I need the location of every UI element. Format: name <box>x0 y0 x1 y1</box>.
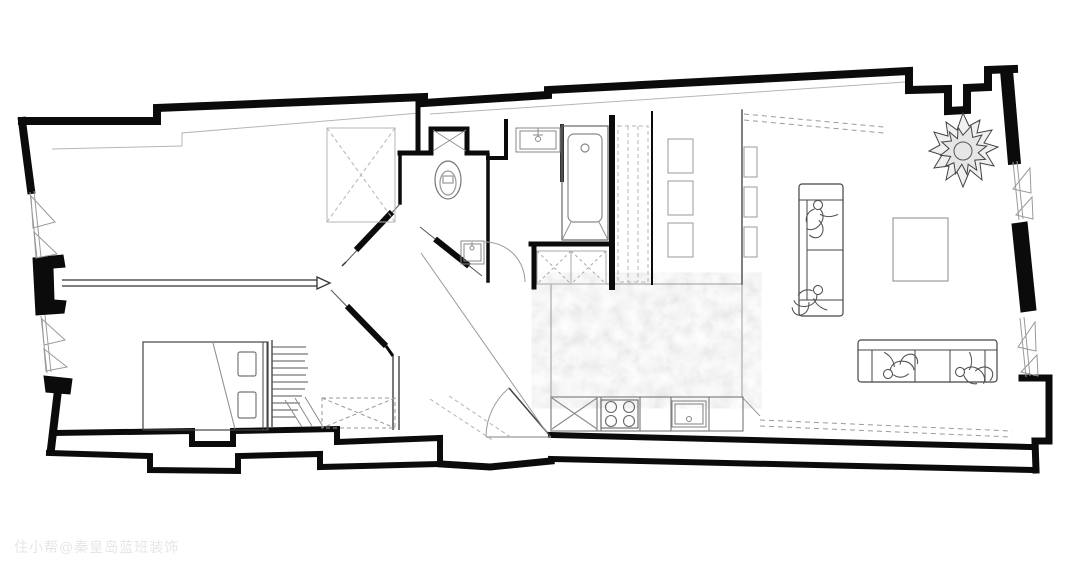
floor-plan-canvas: 住小帮@秦皇岛蓝班装饰 <box>0 0 1080 572</box>
toilet <box>435 161 461 199</box>
floor-plan-drawing <box>0 0 1080 572</box>
kitchen-marble-floor <box>551 284 760 416</box>
watermark-text: 住小帮@秦皇岛蓝班装饰 <box>14 537 179 557</box>
